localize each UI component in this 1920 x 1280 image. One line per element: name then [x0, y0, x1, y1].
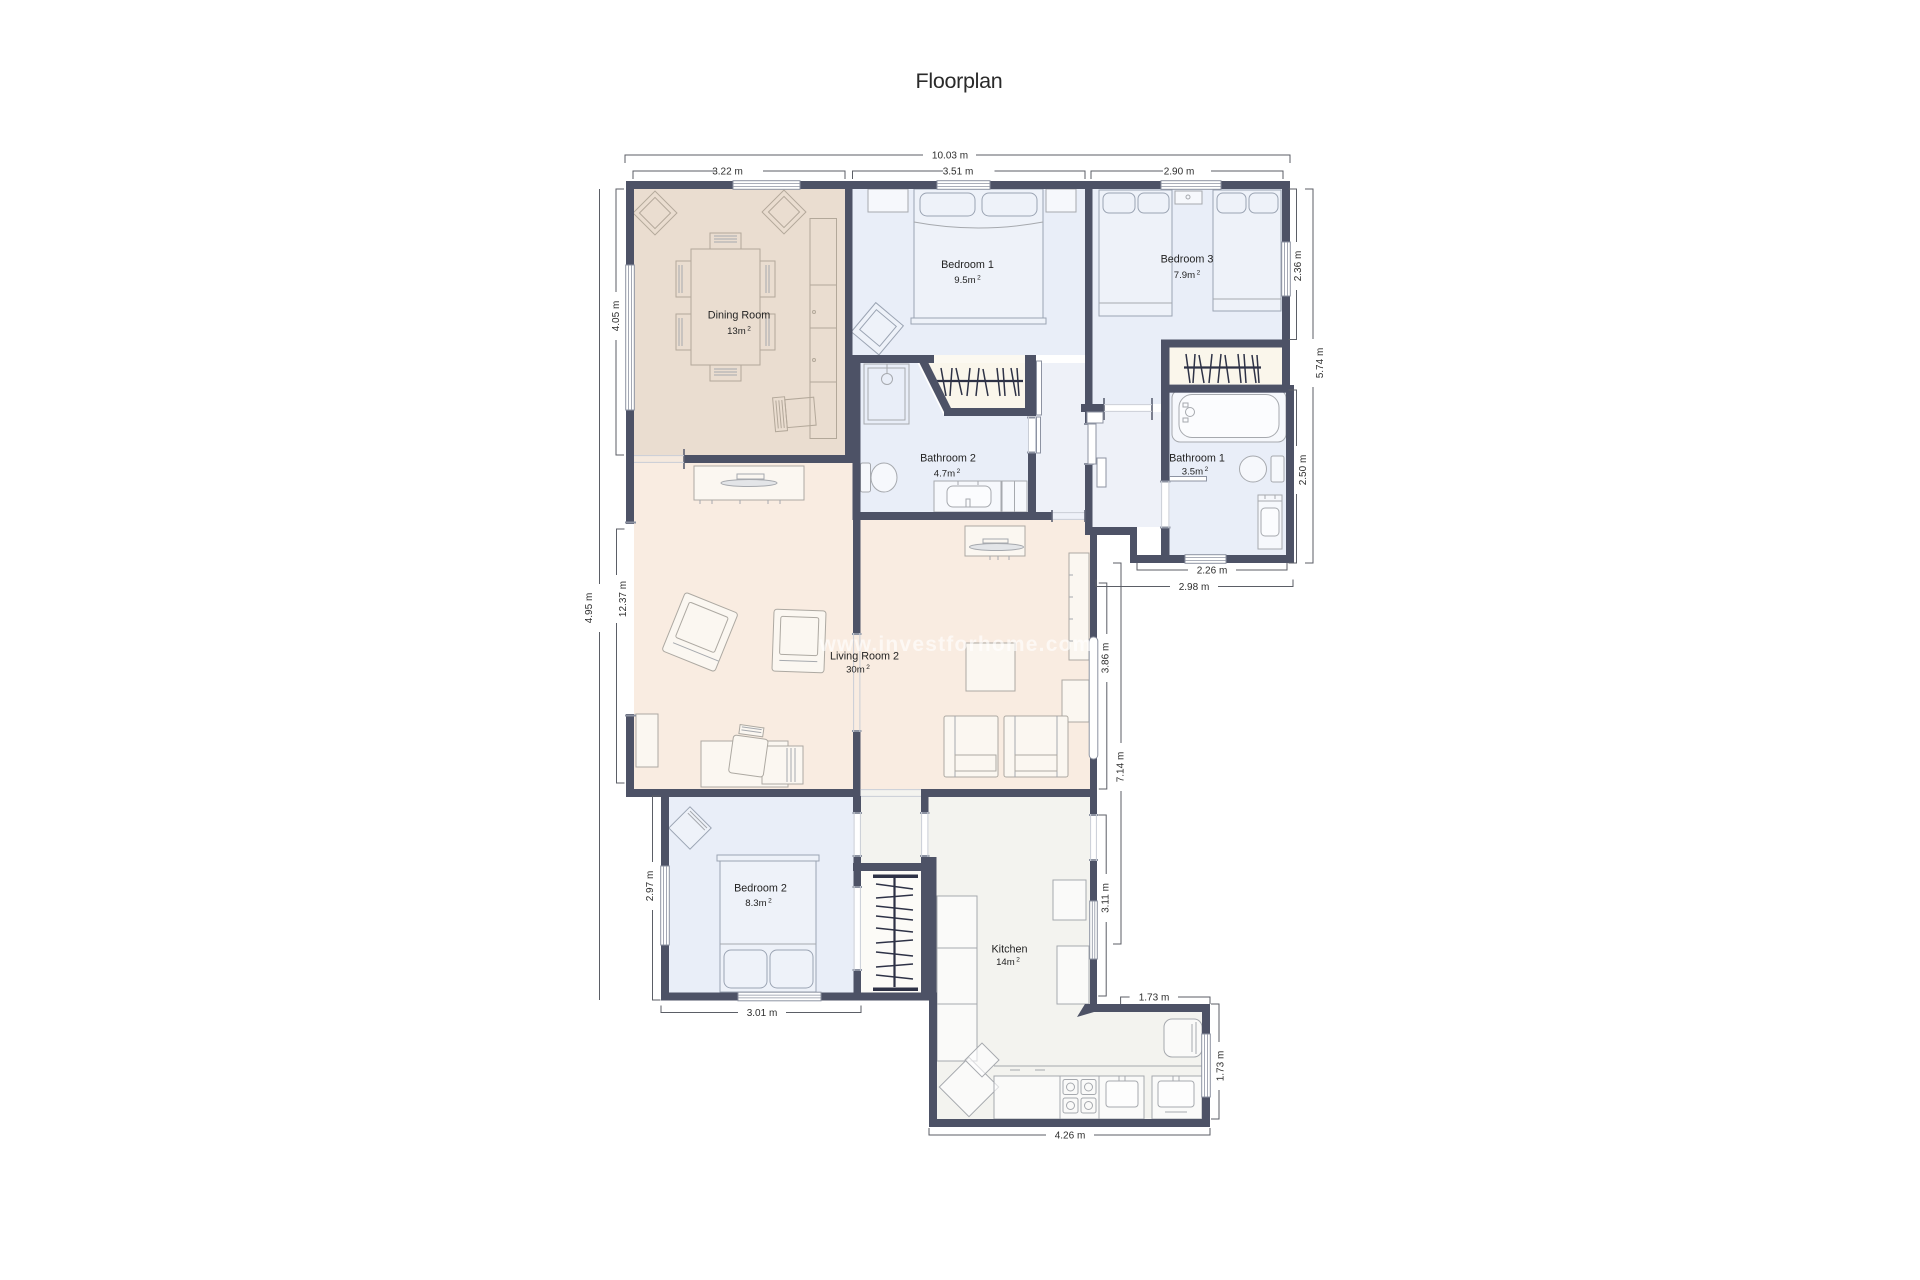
svg-text:2.36 m: 2.36 m: [1293, 251, 1304, 282]
svg-text:4.95 m: 4.95 m: [584, 593, 595, 624]
svg-text:Floorplan: Floorplan: [916, 69, 1003, 93]
svg-text:Bathroom 1: Bathroom 1: [1169, 453, 1225, 465]
svg-text:Bedroom 1: Bedroom 1: [941, 259, 994, 271]
svg-text:7.14 m: 7.14 m: [1116, 752, 1127, 783]
svg-text:3.22 m: 3.22 m: [712, 167, 743, 178]
svg-text:3.11 m: 3.11 m: [1101, 883, 1112, 913]
svg-text:Kitchen: Kitchen: [991, 944, 1027, 956]
svg-text:4.05 m: 4.05 m: [611, 301, 622, 332]
svg-text:3.01 m: 3.01 m: [747, 1008, 778, 1019]
svg-text:Dining Room: Dining Room: [708, 310, 770, 322]
svg-text:Bathroom 2: Bathroom 2: [920, 453, 976, 465]
svg-text:3.51 m: 3.51 m: [943, 167, 974, 178]
svg-text:12.37 m: 12.37 m: [618, 581, 629, 617]
svg-text:1.73 m: 1.73 m: [1139, 993, 1170, 1004]
svg-text:5.74 m: 5.74 m: [1315, 348, 1326, 379]
svg-text:3.86 m: 3.86 m: [1101, 643, 1112, 674]
svg-text:www.investforhome.com: www.investforhome.com: [819, 633, 1093, 656]
svg-text:10.03 m: 10.03 m: [932, 151, 968, 162]
svg-text:2.50 m: 2.50 m: [1298, 455, 1309, 486]
svg-text:1.73 m: 1.73 m: [1216, 1051, 1227, 1082]
svg-text:Bedroom 3: Bedroom 3: [1161, 254, 1214, 266]
svg-text:2.90 m: 2.90 m: [1164, 167, 1195, 178]
svg-text:4.26 m: 4.26 m: [1055, 1131, 1086, 1142]
svg-text:2.98 m: 2.98 m: [1179, 582, 1210, 593]
svg-text:2.26 m: 2.26 m: [1197, 566, 1228, 577]
svg-text:Bedroom 2: Bedroom 2: [734, 883, 787, 895]
svg-text:2.97 m: 2.97 m: [645, 871, 656, 902]
